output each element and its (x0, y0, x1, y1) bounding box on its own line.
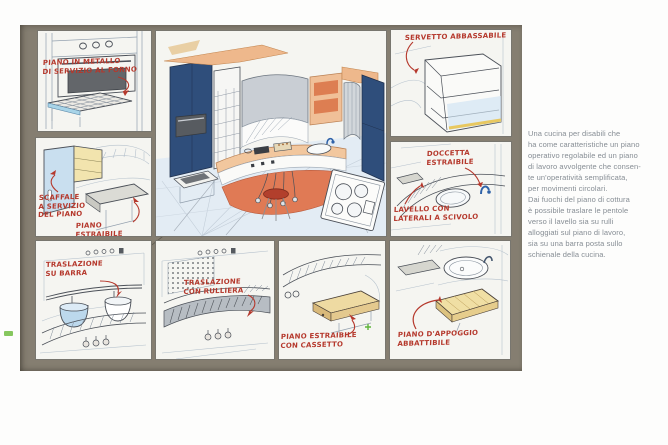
page: PIANO IN METALLO DI SERVIZIO AL FORNO (0, 0, 668, 445)
annotation-scaffale: SCAFFALE A SERVIZIO DEL PIANO (38, 193, 86, 220)
panel-kitchen-overview (155, 30, 387, 237)
annotation-oven-shelf: PIANO IN METALLO DI SERVIZIO AL FORNO (42, 57, 137, 77)
panel-traslazione-rulliera: TRASLAZIONE CON RULLIERA (155, 240, 275, 360)
annotation-piano-cassetto: PIANO ESTRAIBILE CON CASSETTO (280, 331, 357, 350)
panel-oven-shelf: PIANO IN METALLO DI SERVIZIO AL FORNO (37, 30, 152, 132)
annotation-arrow (406, 42, 414, 70)
panel-servetto: SERVETTO ABBASSABILE (390, 29, 512, 137)
green-check-mark (365, 324, 371, 330)
annotation-traslazione-barra: TRASLAZIONE SU BARRA (45, 260, 103, 279)
annotation-piano-estraibile: PIANO ESTRAIBILE (75, 220, 151, 237)
panel-piano-appoggio: PIANO D'APPOGGIO ABBATTIBILE (389, 240, 511, 360)
annotation-lavello: LAVELLO CON LATERALI A SCIVOLO (393, 204, 479, 223)
page-number-marker (4, 331, 13, 336)
panel-traslazione-barra: TRASLAZIONE SU BARRA (35, 240, 152, 360)
servetto-sketch (391, 30, 511, 136)
caption-text: Una cucina per disabili che ha come cara… (528, 128, 662, 260)
traslazione-barra-sketch (36, 241, 151, 359)
panel-piano-cassetto: PIANO ESTRAIBILE CON CASSETTO (278, 240, 386, 360)
annotation-piano-appoggio: PIANO D'APPOGGIO ABBATTIBILE (397, 329, 478, 348)
traslazione-rulliera-sketch (156, 241, 274, 359)
panel-lavello: DOCCETTA ESTRAIBILE LAVELLO CON LATERALI… (390, 141, 512, 237)
panel-scaffale: SCAFFALE A SERVIZIO DEL PIANO PIANO ESTR… (35, 137, 152, 237)
annotation-traslazione-rulliera: TRASLAZIONE CON RULLIERA (183, 277, 244, 296)
annotation-arrow (413, 300, 438, 329)
oven-shelf-sketch (38, 31, 151, 131)
kitchen-rendering (156, 31, 386, 236)
annotation-doccetta: DOCCETTA ESTRAIBILE (426, 149, 474, 167)
